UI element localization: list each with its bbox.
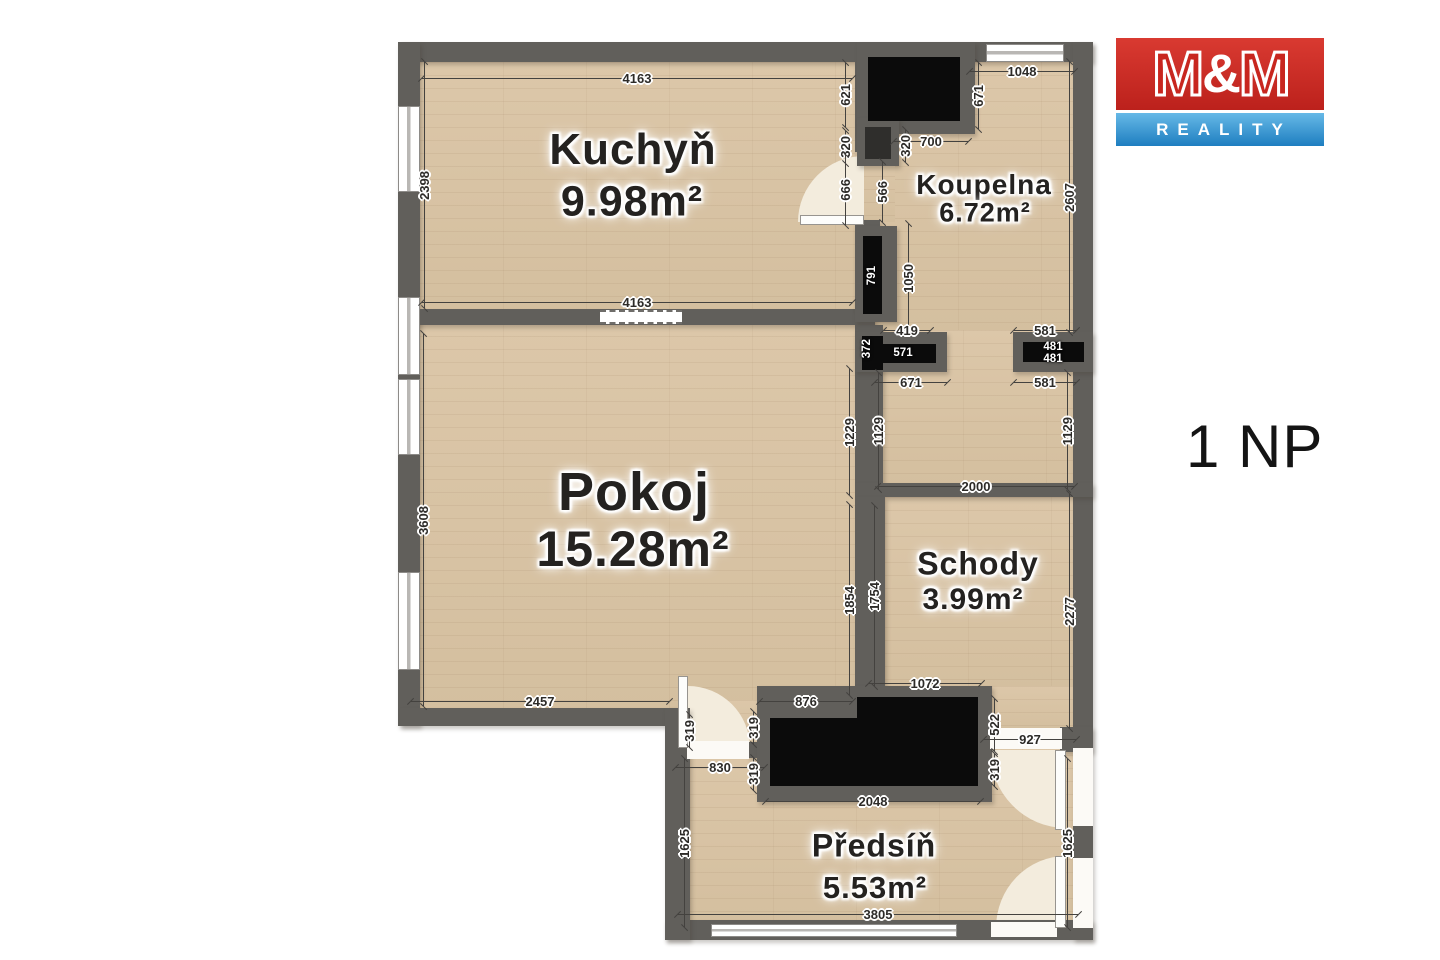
hallway-lower-door-leaf xyxy=(1055,856,1066,928)
mm-reality-logo: M&M REALITY xyxy=(1116,38,1324,146)
kitchen-door-leaf xyxy=(800,215,864,225)
logo-letter-m2: M xyxy=(1239,39,1288,110)
room-window-1 xyxy=(398,297,420,375)
niche-571 xyxy=(874,344,936,363)
mm-logo-mark: M&M xyxy=(1116,38,1324,110)
kitchen-floor xyxy=(420,62,855,312)
logo-letter-m1: M xyxy=(1152,39,1201,110)
floor-number-label: 1 NP xyxy=(1186,412,1323,481)
room-door-opening xyxy=(687,741,749,759)
room-floor xyxy=(420,323,855,713)
room-window-2 xyxy=(398,379,420,455)
logo-ampersand: & xyxy=(1202,43,1238,105)
wall-stairs-top xyxy=(855,483,1093,497)
stairs-door-opening xyxy=(990,728,1062,749)
kitchen-room-opening xyxy=(600,310,682,324)
right-wall-opening-upper xyxy=(1073,748,1093,826)
bathroom-window xyxy=(986,44,1064,62)
room-door-leaf xyxy=(678,676,688,748)
stairwell-void-right xyxy=(857,697,978,786)
niche-481 xyxy=(1023,342,1084,362)
wall-room-bottom xyxy=(400,708,678,726)
hallway-upper-door-leaf xyxy=(1055,750,1066,830)
wall-room-stairs xyxy=(855,497,885,687)
room-window-3 xyxy=(398,572,420,670)
stairwell-void-left xyxy=(770,718,858,786)
kitchen-window xyxy=(398,106,420,192)
floorplan-page: 4163239862132066641636711048700320566260… xyxy=(0,0,1440,960)
stairs-floor xyxy=(885,497,1073,689)
stairs-floor-lower xyxy=(992,686,1073,729)
hallway-window xyxy=(711,924,957,937)
flue-block xyxy=(865,127,891,159)
right-wall-opening-lower xyxy=(1073,858,1093,928)
logo-subtitle: REALITY xyxy=(1116,113,1324,146)
hallway-bottom-door-opening xyxy=(991,922,1057,937)
niche-791 xyxy=(863,236,882,314)
chimney-block xyxy=(868,57,960,121)
